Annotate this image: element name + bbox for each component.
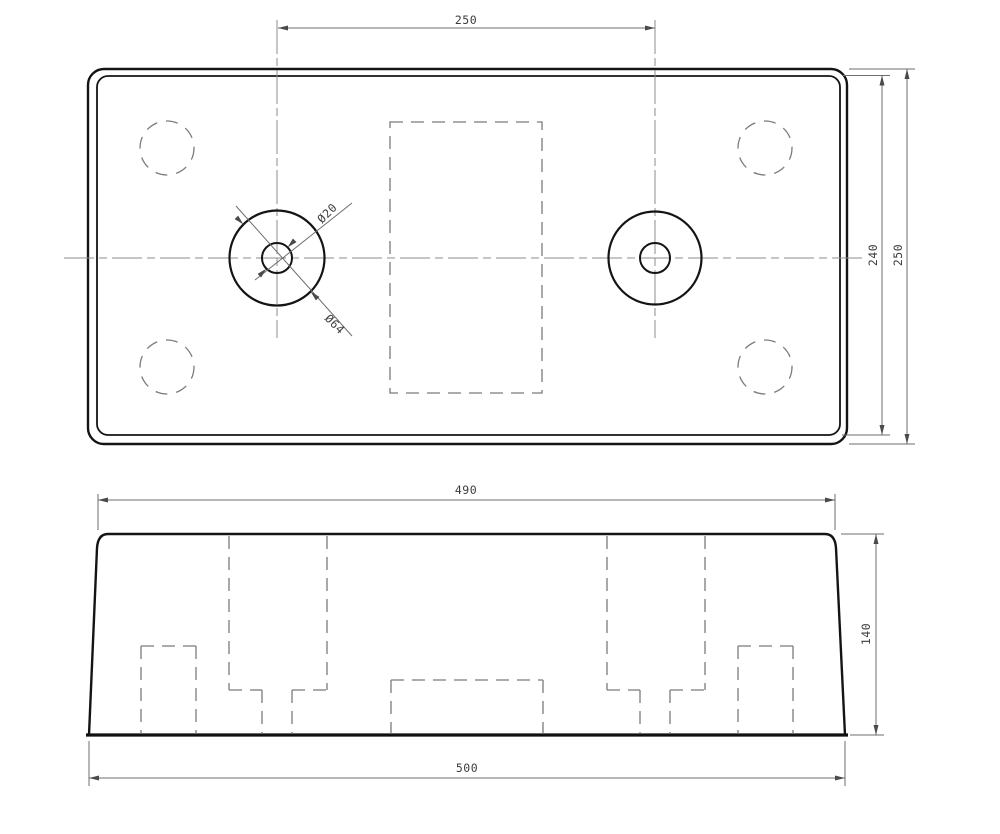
dim-text-inner-height: 240	[866, 244, 880, 266]
hidden-center-recess	[391, 680, 543, 733]
technical-drawing: 250 240 250 Ø20	[0, 0, 1000, 834]
dim-text-overall-height: 250	[891, 244, 905, 266]
front-view: 490 140 500	[86, 483, 884, 786]
front-outline	[89, 534, 845, 735]
dim-text-top-width: 490	[455, 483, 477, 497]
dim-boss-dia: Ø64	[235, 206, 352, 337]
plan-outer-outline	[88, 69, 847, 444]
dim-text-hole-spacing: 250	[455, 13, 477, 27]
plan-inner-outline	[97, 76, 840, 435]
hidden-foot-top-left	[140, 121, 194, 175]
dim-top-width: 490	[98, 483, 835, 530]
dim-text-boss-dia: Ø64	[322, 311, 348, 337]
dim-bore-dia: Ø20	[255, 200, 352, 280]
dim-text-front-height: 140	[859, 623, 873, 645]
hidden-foot-top-right	[738, 121, 792, 175]
hidden-right-foot	[738, 646, 793, 733]
dim-text-overall-width: 500	[456, 761, 478, 775]
hidden-left-pocket	[229, 536, 327, 733]
dim-front-height: 140	[841, 534, 884, 735]
dim-inner-height: 240	[842, 76, 890, 436]
dim-overall-width: 500	[89, 741, 845, 786]
hidden-right-pocket	[607, 536, 705, 733]
top-view: 250 240 250 Ø20	[64, 13, 915, 444]
hidden-foot-bottom-right	[738, 340, 792, 394]
hidden-foot-bottom-left	[140, 340, 194, 394]
drawing-sheet: 250 240 250 Ø20	[0, 0, 1000, 834]
hidden-left-foot	[141, 646, 196, 733]
dim-hole-spacing: 250	[278, 13, 655, 31]
dim-text-bore-dia: Ø20	[314, 200, 340, 226]
